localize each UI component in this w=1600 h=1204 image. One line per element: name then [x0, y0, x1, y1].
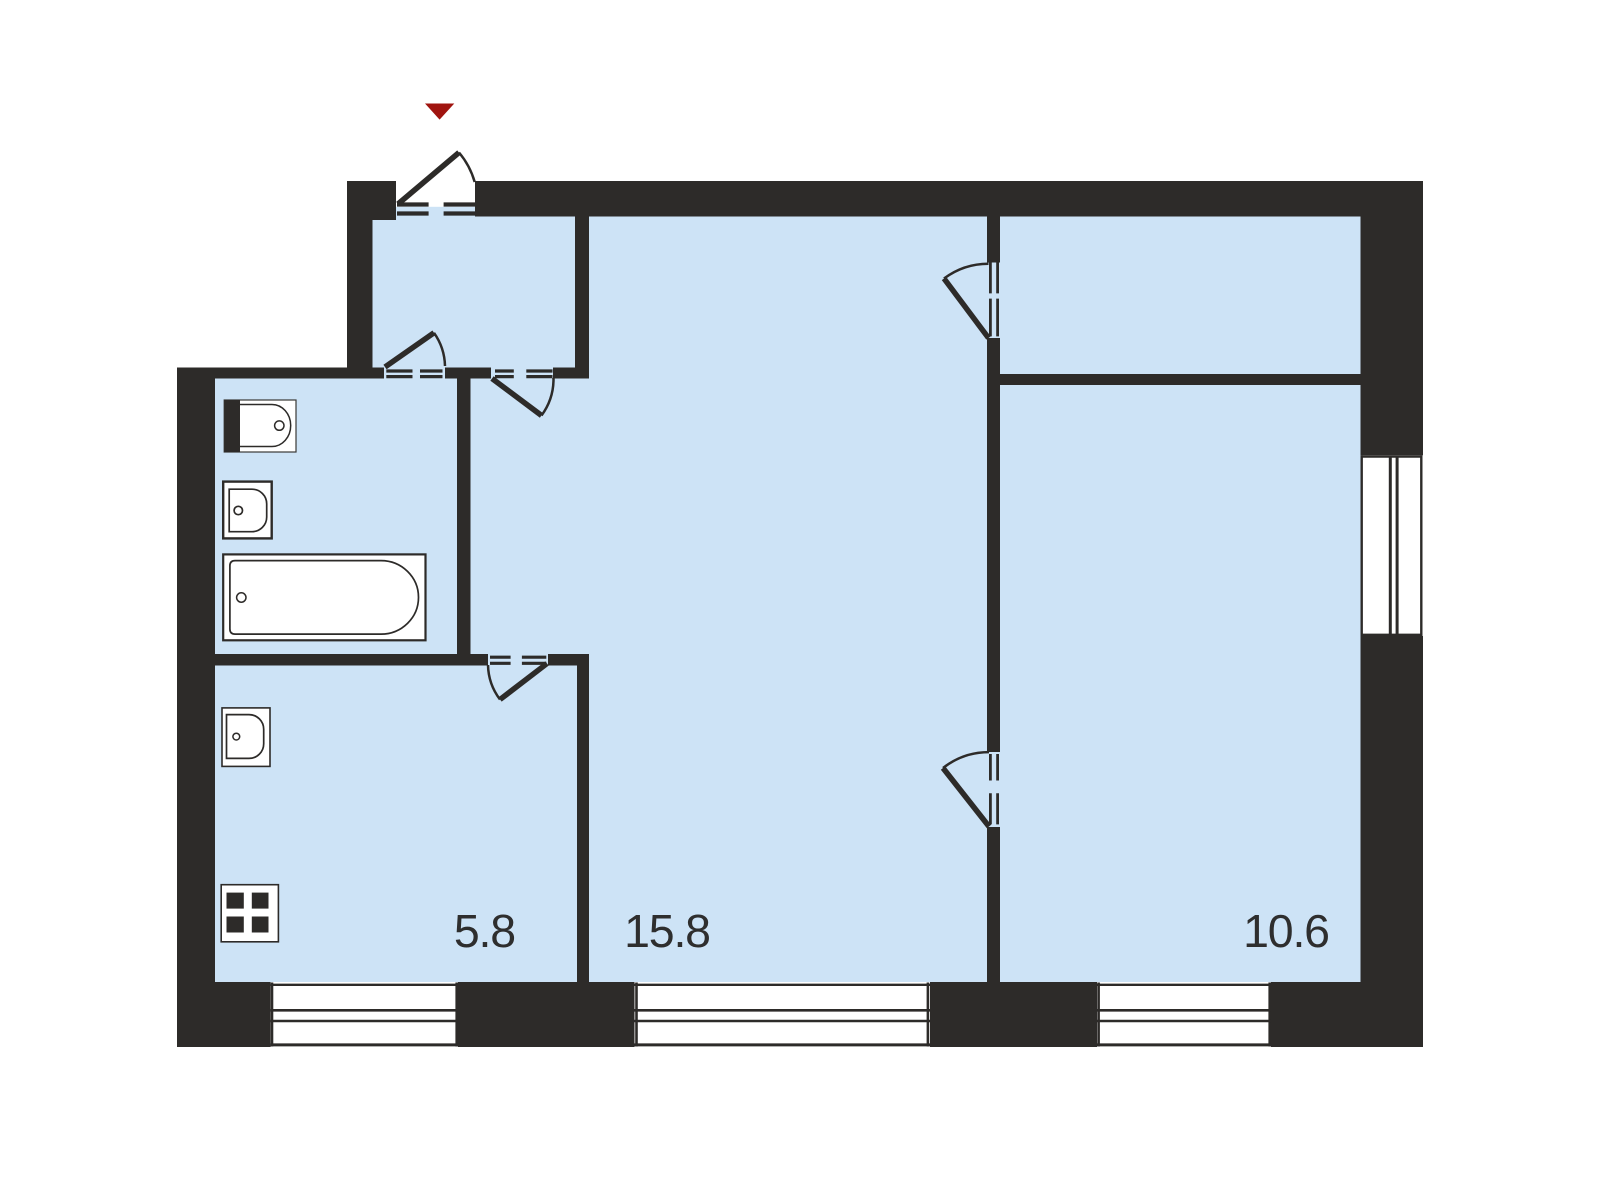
svg-text:15.8: 15.8	[624, 905, 710, 957]
svg-text:5.8: 5.8	[454, 905, 515, 957]
svg-text:10.6: 10.6	[1243, 905, 1329, 957]
